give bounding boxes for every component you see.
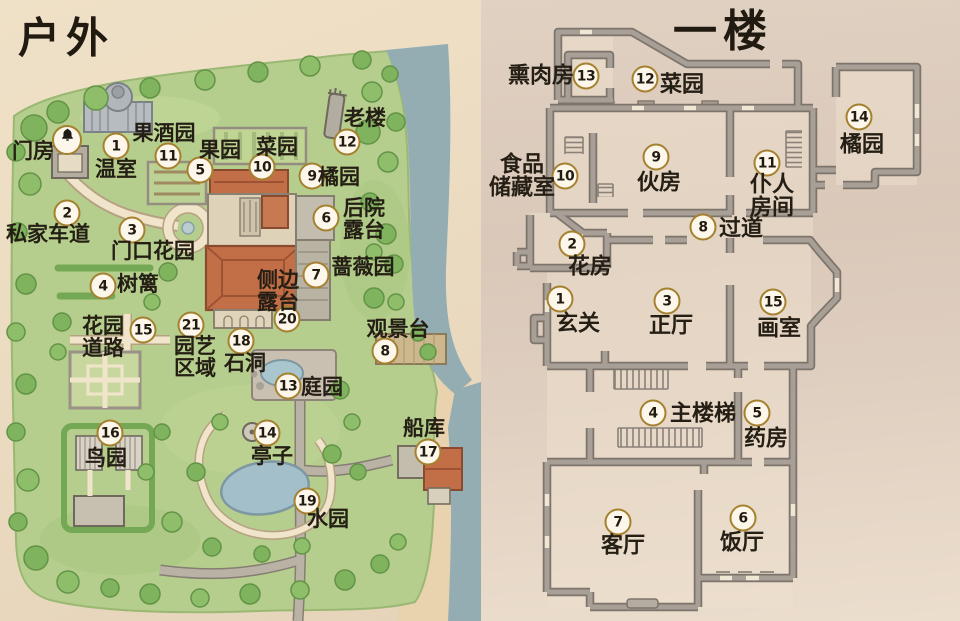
map-label: 温室 [95, 158, 137, 180]
map-marker-4: 4 [90, 273, 117, 300]
map-label: 画室 [757, 316, 801, 339]
marker-number: 14 [258, 425, 276, 441]
map-label: 老楼 [344, 107, 386, 129]
map-label: 饭厅 [720, 530, 764, 553]
marker-number: 4 [648, 405, 657, 421]
map-marker-6: 6 [730, 505, 757, 532]
map-label: 药房 [744, 426, 788, 449]
map-marker-9: 9 [643, 144, 670, 171]
map-label: 观景台 [367, 318, 430, 340]
marker-number: 11 [758, 155, 776, 171]
map-label: 玄关 [556, 311, 600, 334]
marker-number: 11 [159, 148, 177, 164]
map-label: 侧边 露台 [257, 269, 299, 314]
marker-number: 14 [850, 109, 868, 125]
marker-number: 18 [232, 333, 250, 349]
floor-map-title: 一楼 [673, 0, 773, 59]
marker-number: 12 [338, 134, 356, 150]
map-label: 仆人 房间 [750, 173, 794, 220]
game-map-screen: { "left_map": { "title": "户外", "location… [0, 0, 960, 621]
marker-number: 13 [279, 378, 297, 394]
map-label: 橘园 [840, 132, 884, 155]
map-marker-16: 16 [97, 420, 124, 447]
map-label: 鸟园 [85, 447, 127, 469]
marker-number: 6 [738, 510, 747, 526]
map-label: 主楼梯 [670, 401, 736, 424]
map-label: 树篱 [117, 273, 159, 295]
marker-number: 5 [752, 405, 761, 421]
marker-number: 15 [764, 294, 782, 310]
map-marker-12: 12 [334, 129, 361, 156]
marker-number: 3 [662, 293, 671, 309]
map-label: 庭园 [301, 376, 343, 398]
marker-number: 16 [101, 425, 119, 441]
map-label: 橘园 [318, 166, 360, 188]
bell-icon [59, 127, 76, 144]
map-label: 后院 露台 [343, 197, 385, 242]
map-label: 正厅 [649, 313, 693, 336]
map-marker-3: 3 [654, 288, 681, 315]
map-label: 熏肉房 [508, 63, 574, 86]
marker-number: 15 [134, 322, 152, 338]
map-marker-1: 1 [103, 133, 130, 160]
map-marker-12: 12 [632, 66, 659, 93]
marker-number: 13 [577, 68, 595, 84]
marker-number: 2 [567, 236, 576, 252]
map-label: 船库 [403, 417, 445, 439]
marker-number: 8 [698, 219, 707, 235]
marker-number: 4 [98, 278, 107, 294]
marker-number: 10 [253, 159, 271, 175]
map-label: 石洞 [224, 352, 266, 374]
outdoor-map-title: 户外 [18, 5, 114, 66]
map-label: 客厅 [601, 533, 645, 556]
map-marker-15: 15 [760, 289, 787, 316]
map-marker-1: 1 [547, 286, 574, 313]
map-label: 水园 [307, 508, 349, 530]
map-annotations: 户外 一楼 门房1温室11果酒园5果园10菜园12老楼9橘园6后院 露台7蔷薇园… [0, 0, 960, 621]
marker-number: 7 [311, 267, 320, 283]
map-label: 蔷薇园 [332, 256, 395, 278]
map-marker-bell [52, 125, 82, 155]
map-label: 食品 储藏室 [489, 153, 555, 200]
map-marker-14: 14 [254, 420, 281, 447]
marker-number: 3 [127, 222, 136, 238]
map-label: 伙房 [637, 170, 681, 193]
marker-number: 10 [556, 168, 574, 184]
marker-number: 9 [307, 168, 316, 184]
map-label: 花园 道路 [82, 315, 124, 360]
map-marker-17: 17 [415, 439, 442, 466]
marker-number: 7 [613, 514, 622, 530]
map-marker-4: 4 [640, 400, 667, 427]
map-label: 亭子 [251, 445, 293, 467]
map-label: 菜园 [660, 72, 704, 95]
map-label: 过道 [719, 216, 763, 239]
map-marker-6: 6 [313, 205, 340, 232]
map-label: 私家车道 [6, 223, 90, 245]
marker-number: 9 [651, 149, 660, 165]
map-label: 门房 [12, 140, 54, 162]
map-marker-11: 11 [155, 143, 182, 170]
marker-number: 12 [636, 71, 654, 87]
marker-number: 2 [62, 205, 71, 221]
map-label: 果园 [199, 139, 241, 161]
map-marker-14: 14 [846, 104, 873, 131]
map-marker-13: 13 [573, 63, 600, 90]
map-label: 菜园 [256, 136, 298, 158]
map-marker-10: 10 [552, 163, 579, 190]
marker-number: 8 [380, 343, 389, 359]
marker-number: 1 [555, 291, 564, 307]
marker-number: 17 [419, 444, 437, 460]
marker-number: 1 [111, 138, 120, 154]
marker-number: 21 [182, 317, 200, 333]
map-label: 果酒园 [133, 122, 196, 144]
map-marker-8: 8 [372, 338, 399, 365]
marker-number: 6 [321, 210, 330, 226]
map-marker-8: 8 [690, 214, 717, 241]
map-label: 门口花园 [111, 240, 195, 262]
marker-number: 5 [195, 162, 204, 178]
map-marker-7: 7 [303, 262, 330, 289]
map-marker-15: 15 [130, 317, 157, 344]
map-label: 园艺 区域 [174, 335, 216, 380]
map-label: 花房 [568, 254, 612, 277]
map-marker-5: 5 [744, 400, 771, 427]
map-marker-13: 13 [275, 373, 302, 400]
